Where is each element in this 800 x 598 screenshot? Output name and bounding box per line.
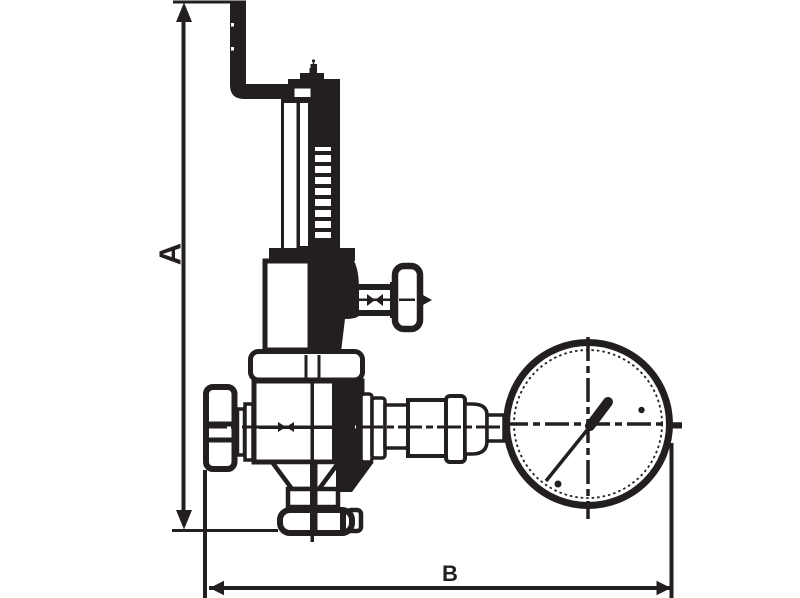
svg-text:A: A — [153, 243, 188, 265]
svg-text:B: B — [442, 561, 458, 586]
